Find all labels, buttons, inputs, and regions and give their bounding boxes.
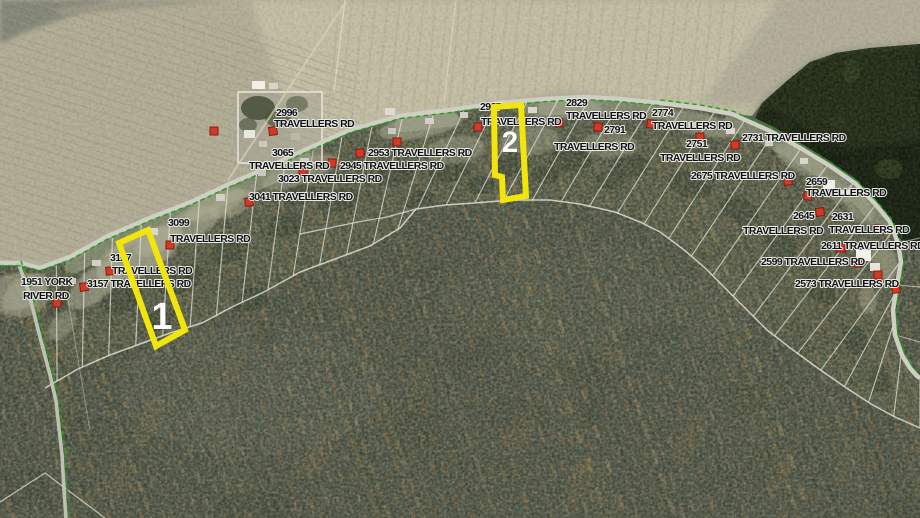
svg-text:2953 TRAVELLERS RD: 2953 TRAVELLERS RD xyxy=(368,147,473,159)
svg-text:3099: 3099 xyxy=(168,217,190,229)
svg-text:2774: 2774 xyxy=(652,107,674,119)
svg-text:TRAVELLERS RD: TRAVELLERS RD xyxy=(249,160,330,172)
svg-text:3023 TRAVELLERS RD: 3023 TRAVELLERS RD xyxy=(278,173,383,185)
svg-text:TRAVELLERS RD: TRAVELLERS RD xyxy=(806,187,887,199)
svg-text:TRAVELLERS RD: TRAVELLERS RD xyxy=(652,120,733,132)
svg-text:2945 TRAVELLERS RD: 2945 TRAVELLERS RD xyxy=(340,160,445,172)
svg-text:2631: 2631 xyxy=(832,211,854,223)
svg-text:2731 TRAVELLERS RD: 2731 TRAVELLERS RD xyxy=(742,132,847,144)
svg-text:2611 TRAVELLERS RD: 2611 TRAVELLERS RD xyxy=(821,240,920,252)
svg-text:2: 2 xyxy=(502,126,519,159)
svg-text:2599 TRAVELLERS RD: 2599 TRAVELLERS RD xyxy=(761,256,866,268)
svg-text:2829: 2829 xyxy=(566,97,588,109)
svg-text:TRAVELLERS RD: TRAVELLERS RD xyxy=(829,224,910,236)
svg-text:TRAVELLERS RD: TRAVELLERS RD xyxy=(566,110,647,122)
svg-text:TRAVELLERS RD: TRAVELLERS RD xyxy=(112,265,193,277)
svg-text:2573 TRAVELLERS RD: 2573 TRAVELLERS RD xyxy=(795,278,900,290)
svg-text:TRAVELLERS RD: TRAVELLERS RD xyxy=(660,152,741,164)
svg-text:3041 TRAVELLERS RD: 3041 TRAVELLERS RD xyxy=(249,191,354,203)
svg-text:2751: 2751 xyxy=(686,138,708,150)
svg-text:TRAVELLERS RD: TRAVELLERS RD xyxy=(274,118,355,130)
svg-text:3157 TRAVELLERS RD: 3157 TRAVELLERS RD xyxy=(87,278,192,290)
svg-text:1: 1 xyxy=(151,296,172,338)
svg-text:RIVER RD: RIVER RD xyxy=(23,290,70,302)
svg-text:3065: 3065 xyxy=(272,147,294,159)
svg-text:TRAVELLERS RD: TRAVELLERS RD xyxy=(170,233,251,245)
svg-text:2791: 2791 xyxy=(604,124,626,136)
svg-text:2675 TRAVELLERS RD: 2675 TRAVELLERS RD xyxy=(691,170,796,182)
svg-text:TRAVELLERS RD: TRAVELLERS RD xyxy=(554,141,635,153)
svg-text:1951 YORK: 1951 YORK xyxy=(21,276,73,288)
svg-text:2645: 2645 xyxy=(793,210,815,222)
svg-text:TRAVELLERS RD: TRAVELLERS RD xyxy=(743,225,824,237)
